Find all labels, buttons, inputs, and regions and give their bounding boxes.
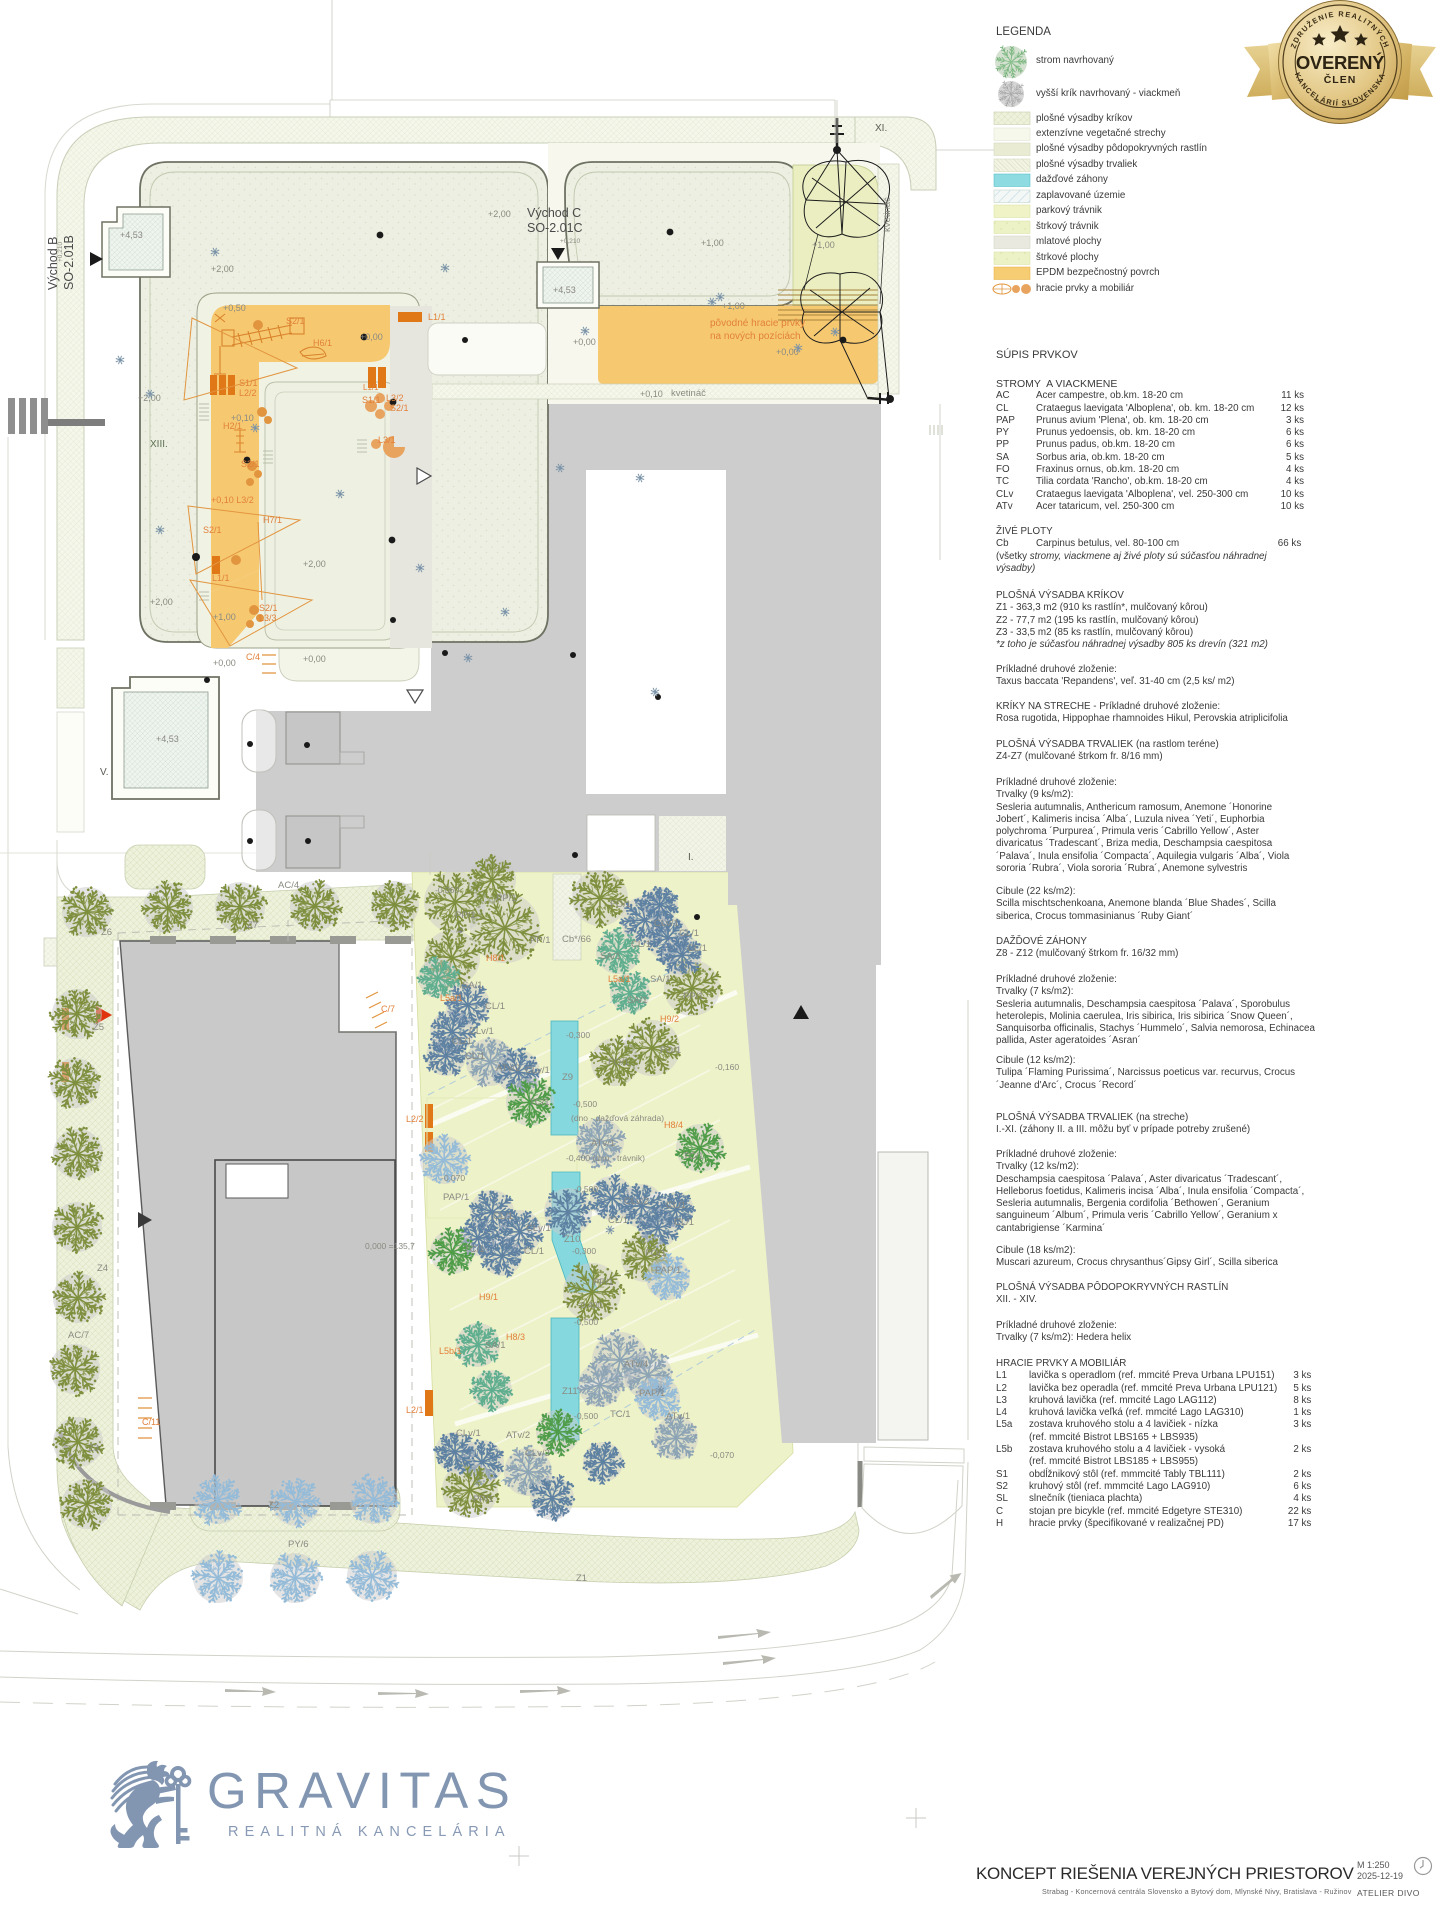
svg-text:+2,00: +2,00 <box>150 597 173 607</box>
svg-text:H8/4: H8/4 <box>664 1120 683 1130</box>
svg-text:SO-2.01B: SO-2.01B <box>62 235 76 290</box>
svg-text:CL/1: CL/1 <box>452 1036 472 1047</box>
svg-text:pôvodné hracie prvky: pôvodné hracie prvky <box>710 318 805 329</box>
svg-text:TC/1: TC/1 <box>464 1244 485 1255</box>
svg-text:na nových pozíciách: na nových pozíciách <box>710 331 801 342</box>
svg-text:0,000 =135,7: 0,000 =135,7 <box>365 1241 415 1251</box>
svg-text:-0,070: -0,070 <box>441 1173 465 1183</box>
svg-text:V.: V. <box>100 767 109 778</box>
svg-text:+2,00: +2,00 <box>211 264 234 274</box>
svg-text:L2/2: L2/2 <box>406 1114 424 1124</box>
svg-text:CL/1: CL/1 <box>493 1211 513 1222</box>
svg-text:I.: I. <box>688 852 694 863</box>
svg-text:FO/1: FO/1 <box>610 899 631 910</box>
svg-text:H7/1: H7/1 <box>263 515 282 525</box>
svg-text:C/11: C/11 <box>142 1417 160 1427</box>
svg-text:+0,10: +0,10 <box>640 389 663 399</box>
svg-text:H8/3: H8/3 <box>506 1332 525 1342</box>
svg-text:L5a/1: L5a/1 <box>608 974 631 984</box>
svg-text:SA/1: SA/1 <box>600 951 621 962</box>
svg-text:-0,500: -0,500 <box>574 1411 598 1421</box>
svg-text:AC/7: AC/7 <box>68 1330 89 1341</box>
svg-text:CL/1: CL/1 <box>485 1001 505 1012</box>
svg-text:FO/1: FO/1 <box>645 1248 666 1259</box>
svg-text:+0,00: +0,00 <box>776 347 799 357</box>
svg-text:S1/1: S1/1 <box>239 378 258 388</box>
svg-text:CLv/1: CLv/1 <box>525 1065 550 1076</box>
svg-text:+0,00: +0,00 <box>360 332 383 342</box>
svg-text:-0,070: -0,070 <box>710 1450 734 1460</box>
svg-text:S2/1: S2/1 <box>286 316 305 326</box>
svg-text:ATv/2: ATv/2 <box>496 1063 520 1074</box>
svg-text:-0,500: -0,500 <box>574 1184 598 1194</box>
svg-text:+0,210: +0,210 <box>560 238 580 245</box>
svg-text:L1/1: L1/1 <box>212 573 230 583</box>
svg-text:kvetináč: kvetináč <box>671 388 706 399</box>
svg-text:Z11: Z11 <box>562 1386 578 1397</box>
svg-text:CL/1: CL/1 <box>631 939 651 950</box>
svg-text:Z3: Z3 <box>88 1443 99 1454</box>
svg-text:TC/1: TC/1 <box>529 1097 550 1108</box>
svg-text:Cb*/66: Cb*/66 <box>562 934 591 945</box>
svg-text:CLv/1: CLv/1 <box>469 1026 494 1037</box>
svg-text:ATv/1: ATv/1 <box>666 1411 690 1422</box>
svg-text:+1,00: +1,00 <box>213 612 236 622</box>
svg-text:L3/3: L3/3 <box>259 613 277 623</box>
svg-text:L1/1: L1/1 <box>363 383 379 392</box>
svg-text:+0,00: +0,00 <box>213 658 236 668</box>
svg-text:+4,53: +4,53 <box>156 734 179 744</box>
svg-text:L2/1: L2/1 <box>406 1405 424 1415</box>
svg-text:CLv/2: CLv/2 <box>624 1196 649 1207</box>
svg-text:CL/1: CL/1 <box>666 1200 686 1211</box>
svg-text:PAP/1: PAP/1 <box>443 1192 469 1203</box>
svg-text:PY/6: PY/6 <box>288 1539 309 1550</box>
svg-text:PAP/1: PAP/1 <box>655 1265 681 1276</box>
svg-text:-0,400 (dno - trávnik): -0,400 (dno - trávnik) <box>566 1153 645 1163</box>
svg-text:PP/1: PP/1 <box>530 935 551 946</box>
svg-text:+4,53: +4,53 <box>553 285 576 295</box>
svg-text:SO-2.01C: SO-2.01C <box>527 221 583 235</box>
svg-text:OVERENÝ: OVERENÝ <box>1296 52 1385 73</box>
svg-text:CL/1: CL/1 <box>465 1051 485 1062</box>
svg-text:Z5: Z5 <box>93 1022 104 1033</box>
svg-text:-0,160: -0,160 <box>715 1062 739 1072</box>
svg-text:L3/1: L3/1 <box>378 435 396 445</box>
svg-text:-0,060: -0,060 <box>435 885 459 895</box>
svg-text:L1/1: L1/1 <box>428 312 446 322</box>
svg-text:+2,00: +2,00 <box>488 209 511 219</box>
svg-text:S2/1: S2/1 <box>259 603 278 613</box>
svg-text:H6/1: H6/1 <box>313 338 332 348</box>
svg-text:+0,10 L3/2: +0,10 L3/2 <box>211 495 254 505</box>
svg-text:-0,500: -0,500 <box>573 1099 597 1109</box>
svg-text:Z2: Z2 <box>268 1500 279 1511</box>
svg-text:+1,00: +1,00 <box>701 238 724 248</box>
svg-text:SA/1: SA/1 <box>650 974 671 985</box>
svg-text:Z6: Z6 <box>101 927 112 938</box>
svg-text:S2/1: S2/1 <box>390 403 409 413</box>
svg-text:+4,53: +4,53 <box>120 230 143 240</box>
svg-text:XI.: XI. <box>875 123 887 134</box>
svg-text:CLv/3: CLv/3 <box>525 1448 550 1459</box>
svg-text:PP/1: PP/1 <box>496 893 517 904</box>
svg-text:Východ C: Východ C <box>527 206 581 220</box>
svg-text:+1,00: +1,00 <box>722 301 745 311</box>
svg-text:ČLEN: ČLEN <box>1324 73 1357 86</box>
svg-text:-0,300: -0,300 <box>572 1246 596 1256</box>
svg-text:ATv/1: ATv/1 <box>591 1138 615 1149</box>
svg-text:XIII.: XIII. <box>150 439 168 450</box>
svg-text:PP/1: PP/1 <box>593 1277 614 1288</box>
svg-text:S2/1: S2/1 <box>203 525 222 535</box>
svg-text:CL/1: CL/1 <box>608 1215 628 1226</box>
svg-text:SA/1: SA/1 <box>627 995 648 1006</box>
svg-text:CL/1: CL/1 <box>679 928 699 939</box>
svg-text:kvetináč: kvetináč <box>882 197 893 232</box>
svg-text:Z1: Z1 <box>576 1573 587 1584</box>
svg-text:(dno - dažďová záhrada): (dno - dažďová záhrada) <box>571 1113 664 1123</box>
svg-text:CL/1: CL/1 <box>674 1217 694 1228</box>
svg-text:C/7: C/7 <box>381 1004 395 1014</box>
svg-text:TC/1: TC/1 <box>683 1151 704 1162</box>
svg-text:S1/1: S1/1 <box>362 395 381 405</box>
svg-text:H9/2: H9/2 <box>660 1014 679 1024</box>
svg-text:H9/1: H9/1 <box>479 1292 498 1302</box>
svg-text:L5a/1: L5a/1 <box>440 993 463 1003</box>
svg-text:+0,50: +0,50 <box>223 303 246 313</box>
svg-text:SA/1: SA/1 <box>485 1340 506 1351</box>
svg-text:L5b/1: L5b/1 <box>439 1346 462 1356</box>
svg-text:SA/1: SA/1 <box>462 980 483 991</box>
svg-text:Z10: Z10 <box>564 1234 580 1245</box>
svg-text:Z9: Z9 <box>562 1072 573 1083</box>
svg-text:FO/1: FO/1 <box>608 1057 629 1068</box>
svg-text:-0,300: -0,300 <box>566 1030 590 1040</box>
svg-text:+1,00: +1,00 <box>812 240 835 250</box>
svg-text:CL/1: CL/1 <box>524 1246 544 1257</box>
svg-text:C/4: C/4 <box>246 652 260 662</box>
svg-text:+0,00: +0,00 <box>303 654 326 664</box>
svg-text:H8/1: H8/1 <box>486 953 505 963</box>
svg-text:FO/1: FO/1 <box>660 1045 681 1056</box>
svg-text:PP/1: PP/1 <box>683 991 704 1002</box>
svg-text:CLv/1: CLv/1 <box>456 1428 481 1439</box>
svg-text:Z4: Z4 <box>97 1263 108 1274</box>
svg-text:Z7: Z7 <box>247 920 258 931</box>
svg-text:S2/1: S2/1 <box>241 459 260 469</box>
svg-text:+0,210: +0,210 <box>57 242 64 262</box>
svg-text:PP/1: PP/1 <box>455 910 476 921</box>
svg-text:H2/1: H2/1 <box>223 421 242 431</box>
svg-text:ATv/4: ATv/4 <box>624 1359 648 1370</box>
svg-text:CL/1: CL/1 <box>687 943 707 954</box>
svg-text:-0,500: -0,500 <box>574 1317 598 1327</box>
svg-text:CLv/1: CLv/1 <box>526 1223 551 1234</box>
svg-text:+2,00: +2,00 <box>303 559 326 569</box>
svg-text:+0,00: +0,00 <box>573 337 596 347</box>
svg-text:AC/4: AC/4 <box>278 880 299 891</box>
svg-text:L3/2: L3/2 <box>386 393 404 403</box>
svg-text:L2/2: L2/2 <box>239 388 257 398</box>
svg-text:TC/1: TC/1 <box>610 1409 631 1420</box>
svg-text:CLv/1: CLv/1 <box>654 918 679 929</box>
svg-text:-0,400: -0,400 <box>578 1300 602 1310</box>
svg-text:ATv/2: ATv/2 <box>506 1430 530 1441</box>
svg-text:PP/1: PP/1 <box>473 1494 494 1505</box>
